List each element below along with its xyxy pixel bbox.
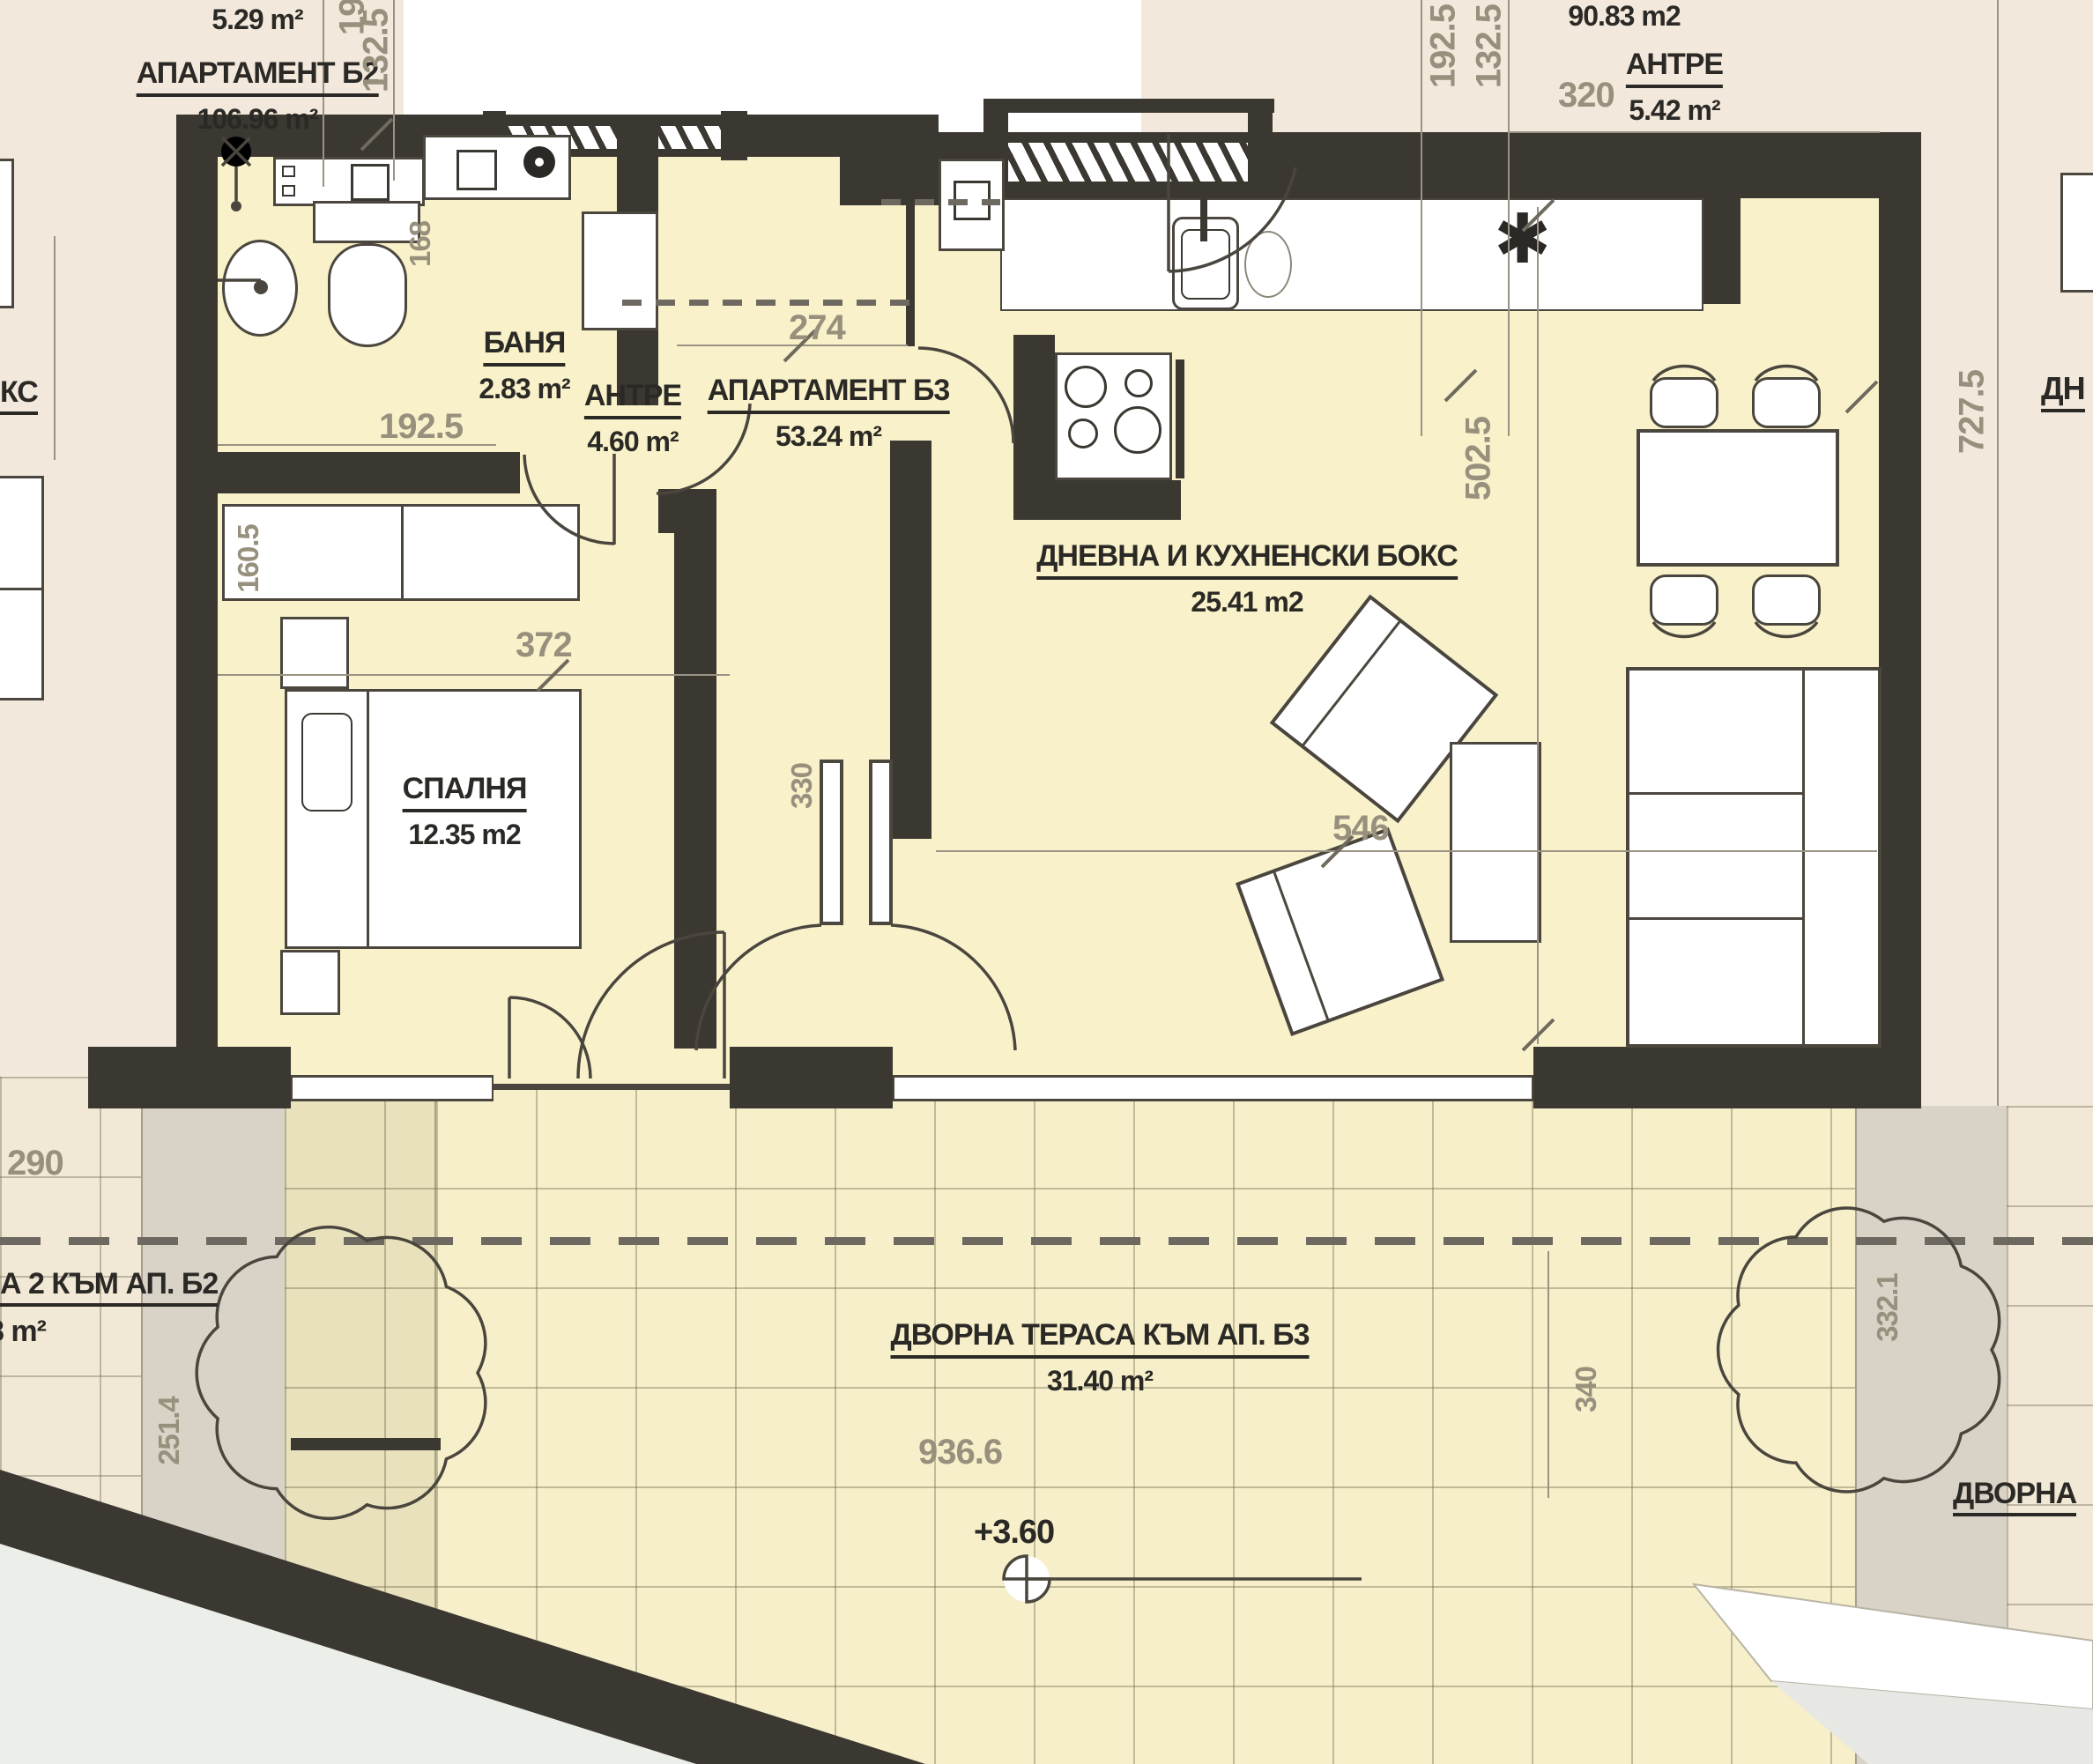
kitchen-counter: [1000, 198, 1703, 311]
appliance-asterisk-icon: ✱: [1494, 204, 1551, 273]
wardrobe: [222, 504, 580, 601]
room-name: ДВОРНА ТЕРАСА КЪМ АП. Б3: [890, 1318, 1309, 1359]
dining-chair: [1752, 377, 1821, 428]
sofa-back-line: [1802, 671, 1805, 1044]
room-name: ДНЕВНА И КУХНЕНСКИ БОКС: [1036, 539, 1458, 580]
bath-washbasin: [222, 240, 298, 337]
wall-pillar-entry: [840, 115, 939, 205]
room-label-terrace-b2: А 2 КЪМ АП. Б2: [0, 1267, 218, 1307]
sink-tap-icon: [1200, 196, 1207, 241]
dining-chair: [1752, 574, 1821, 626]
dim-372: 372: [516, 626, 572, 665]
room-area: 31.40 m²: [890, 1365, 1309, 1397]
bath-vanity: [273, 157, 425, 206]
room-area: 12.35 m2: [403, 819, 527, 851]
area-value: 5.29 m²: [212, 4, 302, 36]
sofa-cushion-line: [1629, 792, 1802, 795]
cut-label-bottom-right: ДВОРНА: [1953, 1477, 2076, 1516]
terrace-divider-bar: [291, 1438, 441, 1450]
sofa: [1626, 667, 1881, 1048]
coffee-table: [1450, 742, 1541, 943]
bath-niche-appliance: [582, 211, 658, 330]
room-area: 5.42 m²: [1626, 94, 1723, 127]
dim-320: 320: [1558, 76, 1614, 115]
room-area: 106.96 m²: [137, 103, 379, 136]
dim-290: 290: [7, 1144, 63, 1183]
burner-icon: [1065, 366, 1107, 408]
double-door-leaf: [820, 760, 843, 925]
dim-251-4: 251.4: [152, 1365, 186, 1497]
neighbor-sofa: [0, 476, 44, 700]
dim-340: 340: [1570, 1323, 1603, 1456]
terrace-door-sill: [494, 1084, 730, 1090]
projection-dashed-line: [0, 1237, 2093, 1245]
armch-back-line: [1273, 872, 1330, 1020]
entry-dashed-line: [881, 199, 1000, 205]
wall-bedroom-right: [674, 533, 716, 1049]
dim-330: 330: [785, 720, 819, 852]
terrace-b3-tiles: [436, 1088, 1855, 1764]
window-top-mid: [1005, 143, 1250, 182]
dim-502-5: 502.5: [1459, 393, 1499, 525]
room-label-apartment-b3: АПАРТАМЕНТ Б3 53.24 m²: [708, 374, 950, 453]
stove-side-line: [1176, 359, 1184, 478]
hall-dashed-line: [622, 300, 913, 306]
burner-icon: [1068, 419, 1098, 448]
terrace-olive-strip: [285, 1088, 436, 1764]
dim-132-5-tr: 132.5: [1470, 0, 1510, 113]
bedroom-terrace-window: [291, 1075, 494, 1101]
bedroom-shelf: [280, 617, 349, 689]
vanity-knob: [282, 166, 295, 177]
neighbor-furniture-right: [2060, 173, 2093, 293]
room-name: АПАРТАМЕНТ Б3: [708, 374, 950, 414]
room-label-antre-top: АНТРЕ 5.42 m²: [1626, 48, 1723, 127]
cut-label-right: ДН: [2041, 370, 2085, 412]
room-name: АНТРЕ: [1626, 48, 1723, 88]
double-door-leaf: [869, 760, 893, 925]
room-label-antre: АНТРЕ 4.60 m²: [584, 379, 681, 458]
window-lintel: [983, 99, 1274, 113]
dining-chair: [1650, 377, 1718, 428]
terrace-b2-area: 8 m²: [0, 1315, 46, 1349]
dim-168: 168: [404, 178, 437, 310]
room-label-apartment-b2: АПАРТАМЕНТ Б2 106.96 m²: [137, 56, 379, 136]
dim-546: 546: [1332, 809, 1389, 849]
wall-bottom-left-block: [88, 1047, 291, 1108]
neighbor-sofa-line: [0, 588, 41, 590]
neighbor-terrace-right: [2007, 1106, 2093, 1764]
cut-label-left: КС: [0, 375, 38, 415]
bed-pillow-divider: [367, 692, 369, 946]
burner-icon: [1124, 369, 1153, 397]
room-name: БАНЯ: [484, 326, 566, 367]
vanity-sink: [351, 164, 390, 201]
room-area: 25.41 m2: [1036, 586, 1458, 619]
sofa-cushion-line: [1629, 917, 1802, 920]
room-area: 4.60 m²: [584, 426, 681, 458]
wall-corner-hall: [658, 489, 716, 533]
room-name: АНТРЕ: [584, 379, 681, 419]
dim-274: 274: [789, 308, 845, 348]
room-name: АПАРТАМЕНТ Б2: [137, 56, 379, 97]
hall-total-area: 90.83 m2: [1568, 0, 1680, 33]
neighbor-furniture: [0, 159, 14, 308]
dim-936-6: 936.6: [918, 1433, 1002, 1472]
drain-center: [535, 158, 544, 167]
wall-bath-right-upper: [617, 115, 658, 211]
window-frame: [1248, 111, 1273, 198]
b2-upper-area: 5.29 m²: [212, 4, 302, 36]
room-label-terrace-b3: ДВОРНА ТЕРАСА КЪМ АП. Б3 31.40 m²: [890, 1318, 1309, 1397]
vanity-knob: [282, 185, 295, 196]
wall-bath-bottom: [218, 452, 520, 493]
room-area: 53.24 m²: [708, 420, 950, 453]
room-label-living: ДНЕВНА И КУХНЕНСКИ БОКС 25.41 m2: [1036, 539, 1458, 619]
room-label-banya: БАНЯ 2.83 m²: [479, 326, 569, 405]
nightstand: [280, 950, 340, 1015]
dining-chair: [1650, 574, 1718, 626]
dim-332-1: 332.1: [1871, 1241, 1904, 1374]
dim-192-5-bath: 192.5: [379, 407, 463, 447]
toilet-bowl: [328, 243, 407, 347]
room-name: СПАЛНЯ: [403, 772, 527, 812]
burner-icon: [1114, 406, 1162, 454]
dim-160-5: 160.5: [232, 493, 265, 625]
wall-kitchen-stub: [1703, 198, 1740, 304]
dim-727-5: 727.5: [1953, 346, 1993, 478]
wardrobe-divider: [401, 507, 404, 598]
wall-kitchen-thin: [906, 205, 915, 346]
area-value: 90.83 m2: [1568, 0, 1680, 33]
stove: [1055, 352, 1172, 480]
living-terrace-window: [893, 1075, 1533, 1101]
kitchen-pot-icon: [1244, 231, 1292, 298]
wall-bottom-right-band: [1533, 1047, 1921, 1108]
dim-132-5-tl: 132.5: [357, 0, 397, 117]
divider-strip-right: [1855, 1106, 2010, 1764]
room-area: 2.83 m²: [479, 373, 569, 405]
wall-left: [176, 115, 218, 1088]
counter-detail: [456, 150, 497, 190]
wall-hall-living: [890, 441, 931, 839]
floorplan-page: { "plan": { "title_context": "apartment …: [0, 0, 2093, 1764]
wall-kitchen-L-horiz: [1013, 480, 1181, 520]
wall-right: [1879, 132, 1921, 1095]
neighbor-right-area: [1921, 0, 2093, 1108]
room-label-bedroom: СПАЛНЯ 12.35 m2: [403, 772, 527, 851]
pillow: [301, 713, 353, 812]
wall-bottom-mid-block: [730, 1047, 893, 1108]
elevation-value: +3.60: [974, 1514, 1054, 1552]
dim-192-5-tr: 192.5: [1424, 0, 1464, 113]
dining-table: [1637, 429, 1839, 567]
window-frame: [721, 111, 747, 160]
